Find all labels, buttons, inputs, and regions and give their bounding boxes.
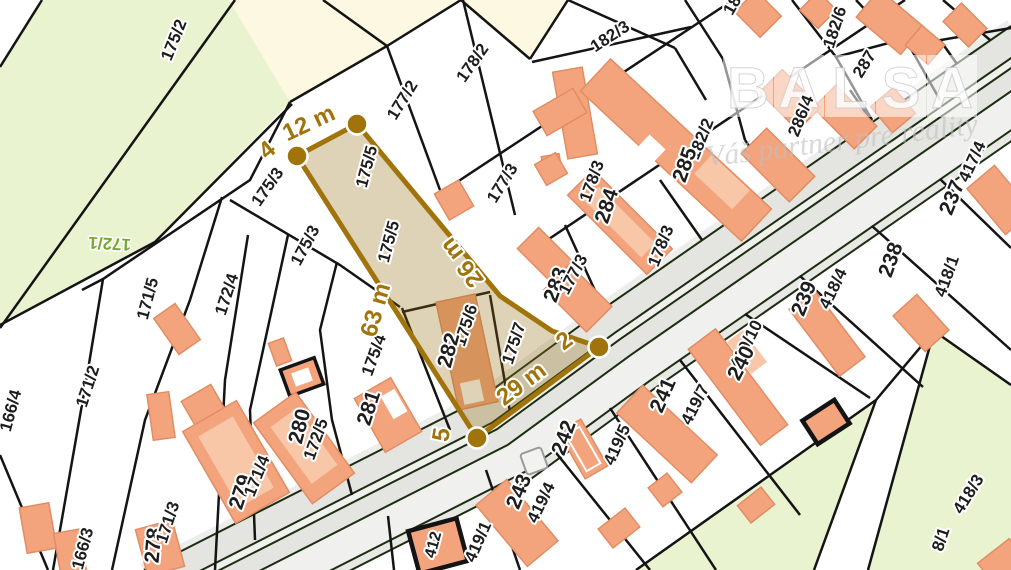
svg-text:S: S: [882, 56, 921, 121]
svg-text:172/1: 172/1: [88, 233, 131, 254]
svg-text:B: B: [727, 56, 769, 121]
